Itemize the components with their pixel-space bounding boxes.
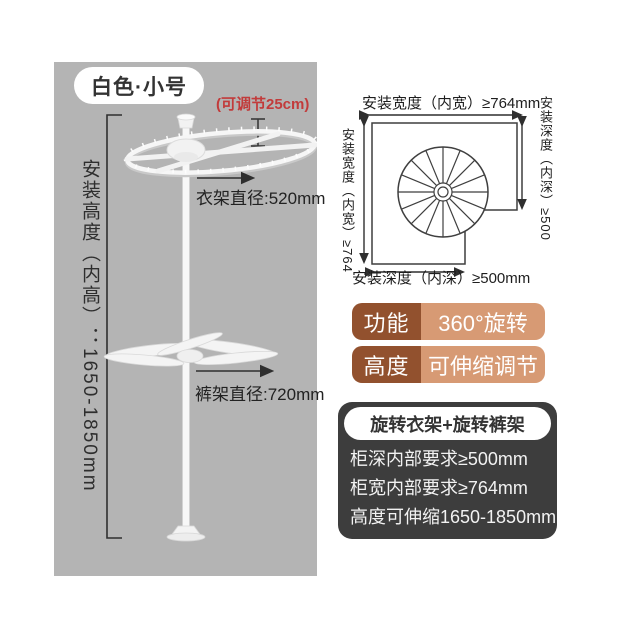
height-dimension-bracket bbox=[107, 115, 122, 538]
feature-value: 360°旋转 bbox=[421, 303, 545, 340]
spec-summary-box: 旋转衣架+旋转裤架 柜深内部要求≥500mm 柜宽内部要求≥764mm 高度可伸… bbox=[338, 402, 557, 539]
install-plan-diagram bbox=[336, 108, 548, 282]
spec-line-height: 高度可伸缩1650-1850mm bbox=[344, 503, 551, 532]
install-depth-right-label: 安装深度（内深）≥500 bbox=[536, 96, 555, 248]
feature-badge-height: 高度 可伸缩调节 bbox=[352, 346, 545, 383]
spec-lines: 柜深内部要求≥500mm 柜宽内部要求≥764mm 高度可伸缩1650-1850… bbox=[344, 445, 551, 532]
spec-line-width: 柜宽内部要求≥764mm bbox=[344, 474, 551, 503]
install-depth-bottom-label: 安装深度（内深）≥500mm bbox=[352, 267, 530, 288]
pants-hub bbox=[177, 350, 203, 363]
top-hanger-ring bbox=[124, 122, 317, 181]
spec-box-title: 旋转衣架+旋转裤架 bbox=[344, 407, 551, 440]
variant-badge: 白色·小号 bbox=[74, 67, 204, 104]
pants-rack-blades bbox=[104, 329, 279, 368]
install-width-left-label: 安装宽度（内宽）≥764 bbox=[338, 128, 357, 278]
adjustable-range-note: (可调节25cm) bbox=[216, 93, 309, 114]
hanger-diameter-label: 衣架直径:520mm bbox=[196, 184, 325, 209]
feature-key: 高度 bbox=[352, 346, 421, 383]
install-height-label: 安装高度（内高）：1650-1850mm bbox=[76, 159, 103, 529]
feature-key: 功能 bbox=[352, 303, 421, 340]
spiral-rack-symbol bbox=[398, 147, 488, 237]
feature-badge-function: 功能 360°旋转 bbox=[352, 303, 545, 340]
spec-line-depth: 柜深内部要求≥500mm bbox=[344, 445, 551, 474]
pants-diameter-label: 裤架直径:720mm bbox=[195, 380, 324, 405]
pole-base bbox=[167, 526, 205, 541]
feature-value: 可伸缩调节 bbox=[421, 346, 545, 383]
product-photo-panel: 白色·小号 (可调节25cm) 安装高度（内高）：1650-1850mm 衣架直… bbox=[54, 62, 317, 576]
